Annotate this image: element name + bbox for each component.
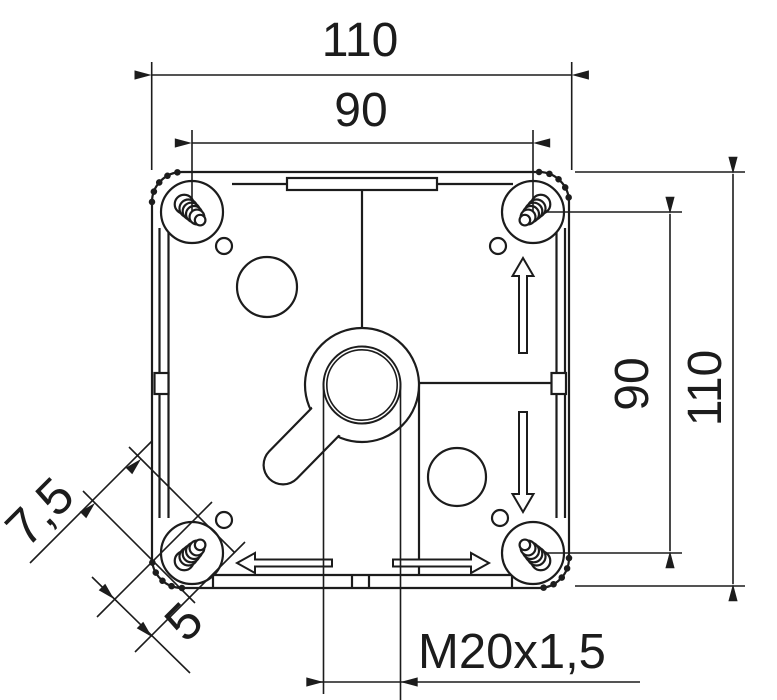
dim-height-mounting-label: 90 <box>606 357 659 410</box>
dim-corner-inner-label: 5 <box>153 591 213 651</box>
breakout-hole-upper-left <box>237 257 297 317</box>
breakout-hole-lower-right <box>428 448 486 506</box>
enclosure-body <box>152 172 569 588</box>
pilot-hole-top-right <box>490 238 506 254</box>
right-wall-joint <box>552 373 567 394</box>
pilot-hole-bottom-left <box>216 512 232 528</box>
dim-width-mounting-label: 90 <box>334 84 387 137</box>
dim-gland-thread-label: M20x1,5 <box>418 625 606 679</box>
pilot-hole-bottom-right <box>492 510 508 526</box>
dim-corner-offset-label: 7,5 <box>0 466 85 556</box>
dim-width-overall-label: 110 <box>322 14 399 67</box>
pilot-hole-top-left <box>216 238 232 254</box>
top-ledge <box>287 178 437 190</box>
technical-drawing-svg: 110 90 90 110 7,5 5 <box>0 0 777 700</box>
dim-height-overall: 110 <box>575 172 745 586</box>
left-wall-joint <box>155 373 169 394</box>
dim-height-overall-label: 110 <box>679 350 732 427</box>
drawing-canvas: 110 90 90 110 7,5 5 <box>0 0 777 700</box>
